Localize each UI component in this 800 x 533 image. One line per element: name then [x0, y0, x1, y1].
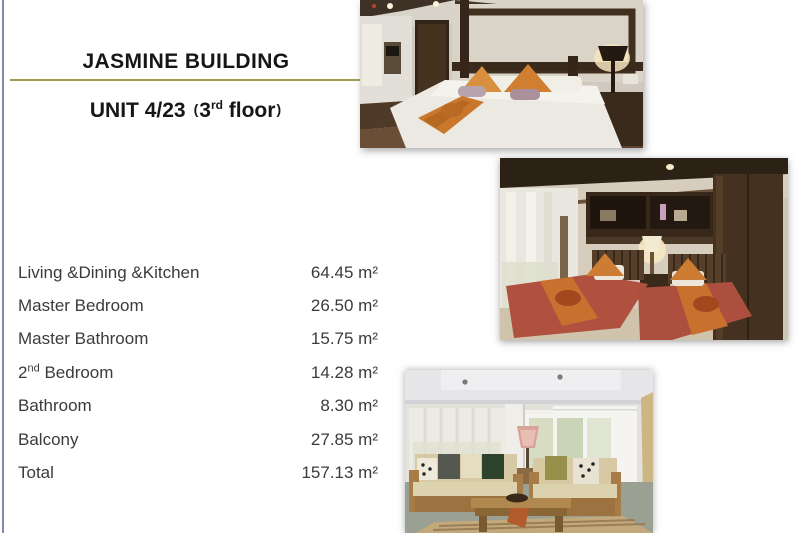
room-area-value: 64.45 m² — [311, 263, 378, 283]
room-area-value: 26.50 m² — [311, 296, 378, 316]
slide-header: JASMINE BUILDING UNIT 4/23(3rd floor) — [10, 50, 362, 125]
building-title: JASMINE BUILDING — [10, 50, 362, 74]
room-area-value: 157.13 m² — [301, 463, 378, 483]
master-bedroom-photo — [360, 0, 643, 148]
room-label: Master Bathroom — [18, 329, 148, 349]
second-bedroom-photo — [500, 158, 788, 340]
room-area-value: 27.85 m² — [311, 430, 378, 450]
area-table-row: Master Bedroom26.50 m² — [18, 289, 378, 322]
close-paren: ) — [275, 101, 282, 117]
room-label: Balcony — [18, 430, 78, 450]
room-area-table: Living &Dining &Kitchen64.45 m²Master Be… — [18, 256, 378, 490]
unit-number: UNIT 4/23 — [90, 99, 186, 122]
floor-number: 3 — [199, 99, 211, 122]
open-paren: ( — [193, 101, 200, 117]
slide-left-edge-line — [2, 0, 4, 533]
floor-word: floor — [223, 99, 276, 122]
room-area-value: 8.30 m² — [320, 396, 378, 416]
area-table-row: Living &Dining &Kitchen64.45 m² — [18, 256, 378, 289]
room-area-value: 15.75 m² — [311, 329, 378, 349]
area-table-row: Total157.13 m² — [18, 456, 378, 489]
area-table-row: Master Bathroom15.75 m² — [18, 323, 378, 356]
area-table-row: Balcony27.85 m² — [18, 423, 378, 456]
room-label: Total — [18, 463, 54, 483]
presentation-slide: JASMINE BUILDING UNIT 4/23(3rd floor) Li… — [0, 0, 800, 533]
room-label: Master Bedroom — [18, 296, 144, 316]
title-underline — [10, 79, 362, 81]
living-room-photo — [405, 370, 653, 533]
unit-subtitle: UNIT 4/23(3rd floor) — [10, 98, 362, 125]
master-bedroom-illustration — [360, 0, 643, 148]
room-area-value: 14.28 m² — [311, 363, 378, 383]
room-label: 2nd Bedroom — [18, 363, 113, 383]
area-table-row: 2nd Bedroom14.28 m² — [18, 356, 378, 389]
floor-ordinal: rd — [211, 98, 223, 112]
room-label: Living &Dining &Kitchen — [18, 263, 199, 283]
room-label: Bathroom — [18, 396, 92, 416]
second-bedroom-illustration — [500, 158, 788, 340]
area-table-row: Bathroom8.30 m² — [18, 390, 378, 423]
living-room-illustration — [405, 370, 653, 533]
